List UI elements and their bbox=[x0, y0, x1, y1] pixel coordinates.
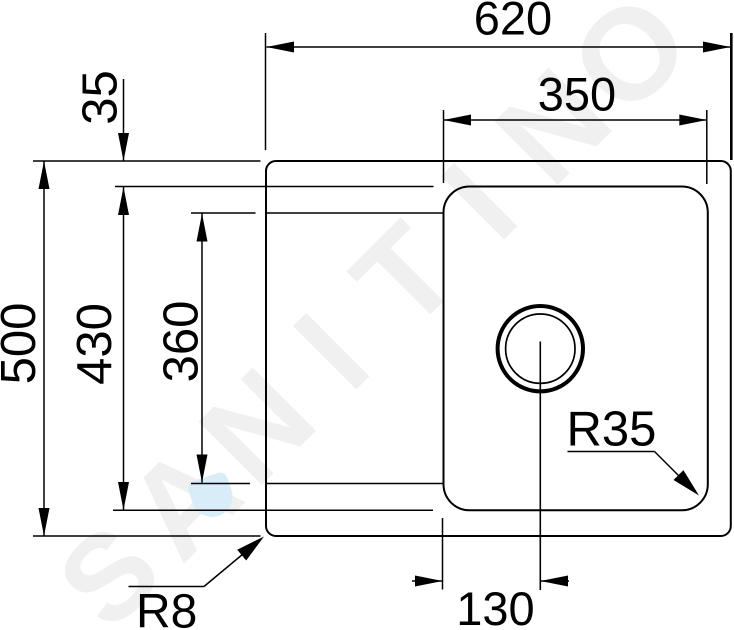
svg-text:R35: R35 bbox=[567, 403, 657, 457]
svg-text:350: 350 bbox=[538, 68, 616, 121]
svg-text:620: 620 bbox=[474, 0, 552, 45]
svg-text:430: 430 bbox=[68, 303, 122, 385]
svg-text:35: 35 bbox=[74, 70, 128, 125]
svg-text:500: 500 bbox=[0, 303, 46, 385]
svg-text:130: 130 bbox=[456, 582, 534, 630]
svg-text:R8: R8 bbox=[136, 586, 197, 630]
svg-text:T: T bbox=[325, 196, 484, 355]
svg-text:360: 360 bbox=[155, 301, 209, 383]
